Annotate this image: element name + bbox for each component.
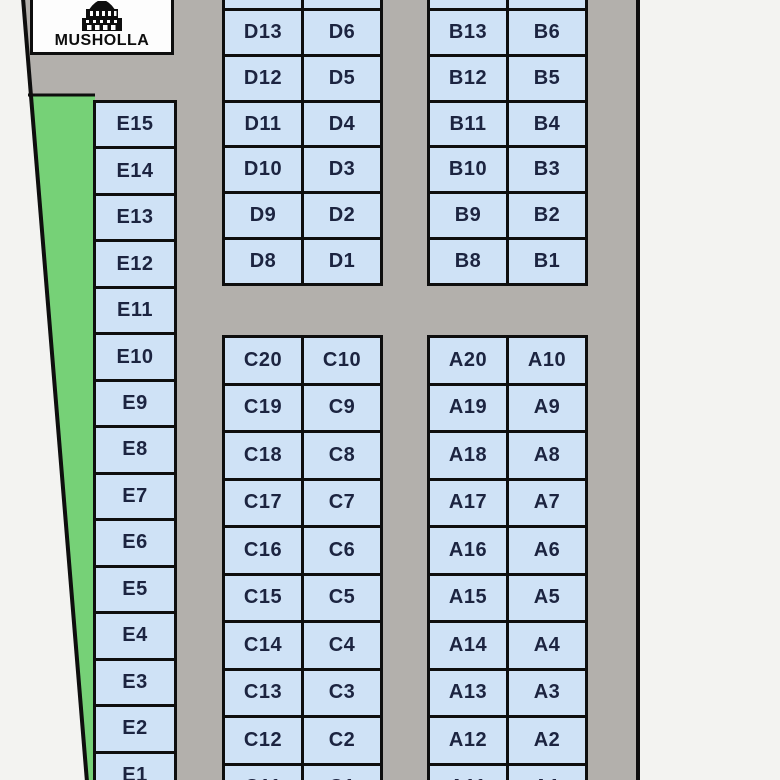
- plot-e11[interactable]: E11: [96, 289, 174, 332]
- plot-c9[interactable]: C9: [304, 386, 380, 431]
- plot-cell-partial: [430, 0, 506, 8]
- musholla-building: MUSHOLLA: [30, 0, 174, 55]
- plot-c20[interactable]: C20: [225, 338, 301, 383]
- plot-e4[interactable]: E4: [96, 614, 174, 657]
- plot-a11[interactable]: A11: [430, 766, 506, 780]
- plot-b4[interactable]: B4: [509, 103, 585, 146]
- plot-c17[interactable]: C17: [225, 481, 301, 526]
- plot-b12[interactable]: B12: [430, 57, 506, 100]
- plot-d8[interactable]: D8: [225, 240, 301, 283]
- plot-a14[interactable]: A14: [430, 623, 506, 668]
- plot-c5[interactable]: C5: [304, 576, 380, 621]
- plot-c18[interactable]: C18: [225, 433, 301, 478]
- plot-b5[interactable]: B5: [509, 57, 585, 100]
- plot-c2[interactable]: C2: [304, 718, 380, 763]
- plot-a9[interactable]: A9: [509, 386, 585, 431]
- plot-d3[interactable]: D3: [304, 148, 380, 191]
- plot-d9[interactable]: D9: [225, 194, 301, 237]
- plot-a13[interactable]: A13: [430, 671, 506, 716]
- plot-c19[interactable]: C19: [225, 386, 301, 431]
- plot-d5[interactable]: D5: [304, 57, 380, 100]
- plot-a1[interactable]: A1: [509, 766, 585, 780]
- plot-d13[interactable]: D13: [225, 11, 301, 54]
- plot-e12[interactable]: E12: [96, 242, 174, 285]
- plot-b1[interactable]: B1: [509, 240, 585, 283]
- block-a: A20A10A19A9A18A8A17A7A16A6A15A5A14A4A13A…: [427, 335, 588, 780]
- plot-b3[interactable]: B3: [509, 148, 585, 191]
- plot-e5[interactable]: E5: [96, 568, 174, 611]
- plot-d1[interactable]: D1: [304, 240, 380, 283]
- plot-c10[interactable]: C10: [304, 338, 380, 383]
- plot-e9[interactable]: E9: [96, 382, 174, 425]
- plot-e10[interactable]: E10: [96, 335, 174, 378]
- plot-c12[interactable]: C12: [225, 718, 301, 763]
- plot-e8[interactable]: E8: [96, 428, 174, 471]
- plot-e15[interactable]: E15: [96, 103, 174, 146]
- plot-a20[interactable]: A20: [430, 338, 506, 383]
- plot-c16[interactable]: C16: [225, 528, 301, 573]
- block-b: B13B6B12B5B11B4B10B3B9B2B8B1: [427, 0, 588, 286]
- plot-c6[interactable]: C6: [304, 528, 380, 573]
- plot-b9[interactable]: B9: [430, 194, 506, 237]
- plot-d6[interactable]: D6: [304, 11, 380, 54]
- siteplan: MUSHOLLA E15E14E13E12E11E10E9E8E7E6E5E4E…: [0, 0, 780, 780]
- plot-c8[interactable]: C8: [304, 433, 380, 478]
- plot-c4[interactable]: C4: [304, 623, 380, 668]
- plot-a12[interactable]: A12: [430, 718, 506, 763]
- plot-b6[interactable]: B6: [509, 11, 585, 54]
- plot-d12[interactable]: D12: [225, 57, 301, 100]
- plot-b11[interactable]: B11: [430, 103, 506, 146]
- plot-a8[interactable]: A8: [509, 433, 585, 478]
- plot-b8[interactable]: B8: [430, 240, 506, 283]
- plot-a3[interactable]: A3: [509, 671, 585, 716]
- plot-c15[interactable]: C15: [225, 576, 301, 621]
- plot-cell-partial: [304, 0, 380, 8]
- mosque-icon: [73, 1, 131, 31]
- plot-c1[interactable]: C1: [304, 766, 380, 780]
- plot-a19[interactable]: A19: [430, 386, 506, 431]
- plot-a4[interactable]: A4: [509, 623, 585, 668]
- block-e: E15E14E13E12E11E10E9E8E7E6E5E4E3E2E1: [93, 100, 177, 780]
- plot-cell-partial: [509, 0, 585, 8]
- plot-a2[interactable]: A2: [509, 718, 585, 763]
- plot-e2[interactable]: E2: [96, 707, 174, 750]
- plot-e6[interactable]: E6: [96, 521, 174, 564]
- plot-a15[interactable]: A15: [430, 576, 506, 621]
- plot-a7[interactable]: A7: [509, 481, 585, 526]
- plot-b10[interactable]: B10: [430, 148, 506, 191]
- plot-a16[interactable]: A16: [430, 528, 506, 573]
- plot-e14[interactable]: E14: [96, 149, 174, 192]
- plot-c13[interactable]: C13: [225, 671, 301, 716]
- plot-c7[interactable]: C7: [304, 481, 380, 526]
- plot-cell-partial: [225, 0, 301, 8]
- plot-e3[interactable]: E3: [96, 661, 174, 704]
- plot-a6[interactable]: A6: [509, 528, 585, 573]
- plot-e13[interactable]: E13: [96, 196, 174, 239]
- plot-b2[interactable]: B2: [509, 194, 585, 237]
- plot-d2[interactable]: D2: [304, 194, 380, 237]
- plot-d11[interactable]: D11: [225, 103, 301, 146]
- plot-c11[interactable]: C11: [225, 766, 301, 780]
- plot-e7[interactable]: E7: [96, 475, 174, 518]
- block-d: D13D6D12D5D11D4D10D3D9D2D8D1: [222, 0, 383, 286]
- plot-a10[interactable]: A10: [509, 338, 585, 383]
- plot-b13[interactable]: B13: [430, 11, 506, 54]
- plot-c14[interactable]: C14: [225, 623, 301, 668]
- plot-a18[interactable]: A18: [430, 433, 506, 478]
- plot-a5[interactable]: A5: [509, 576, 585, 621]
- musholla-label: MUSHOLLA: [55, 33, 150, 49]
- plot-d4[interactable]: D4: [304, 103, 380, 146]
- plot-c3[interactable]: C3: [304, 671, 380, 716]
- block-c: C20C10C19C9C18C8C17C7C16C6C15C5C14C4C13C…: [222, 335, 383, 780]
- plot-a17[interactable]: A17: [430, 481, 506, 526]
- plot-d10[interactable]: D10: [225, 148, 301, 191]
- plot-e1[interactable]: E1: [96, 754, 174, 780]
